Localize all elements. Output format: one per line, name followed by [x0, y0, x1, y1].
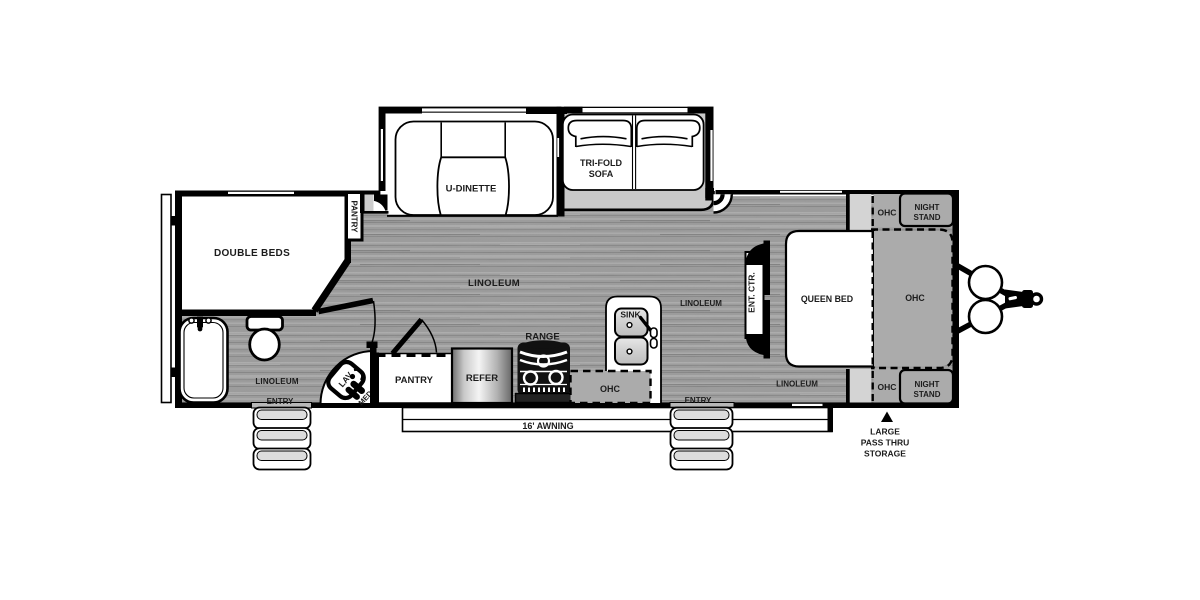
svg-text:STORAGE: STORAGE [864, 449, 906, 459]
svg-text:OHC: OHC [878, 382, 897, 392]
svg-text:LINOLEUM: LINOLEUM [468, 278, 520, 289]
svg-text:ENT. CTR.: ENT. CTR. [747, 272, 757, 313]
svg-text:NIGHT: NIGHT [915, 203, 940, 212]
svg-text:QUEEN BED: QUEEN BED [801, 294, 853, 304]
svg-text:STAND: STAND [914, 390, 941, 399]
svg-text:16' AWNING: 16' AWNING [522, 421, 573, 431]
svg-text:OHC: OHC [600, 384, 621, 394]
svg-text:OHC: OHC [878, 208, 897, 218]
svg-text:DOUBLE BEDS: DOUBLE BEDS [214, 248, 290, 259]
svg-text:SOFA: SOFA [589, 169, 614, 179]
svg-text:NIGHT: NIGHT [915, 380, 940, 389]
svg-text:ENTRY: ENTRY [685, 396, 712, 405]
svg-text:TRI-FOLD: TRI-FOLD [580, 158, 622, 168]
svg-text:LINOLEUM: LINOLEUM [255, 377, 299, 386]
svg-text:U-DINETTE: U-DINETTE [446, 184, 497, 195]
svg-text:LARGE: LARGE [870, 427, 900, 437]
svg-text:STAND: STAND [914, 213, 941, 222]
svg-text:LINOLEUM: LINOLEUM [776, 380, 818, 389]
svg-text:PANTRY: PANTRY [395, 375, 434, 386]
svg-text:SINK: SINK [620, 310, 641, 320]
svg-text:ENTRY: ENTRY [267, 397, 294, 406]
svg-text:OHC: OHC [905, 293, 925, 303]
svg-text:PANTRY: PANTRY [350, 201, 359, 234]
svg-text:REFER: REFER [466, 373, 498, 384]
svg-text:LINOLEUM: LINOLEUM [680, 299, 722, 308]
svg-text:PASS THRU: PASS THRU [861, 438, 910, 448]
